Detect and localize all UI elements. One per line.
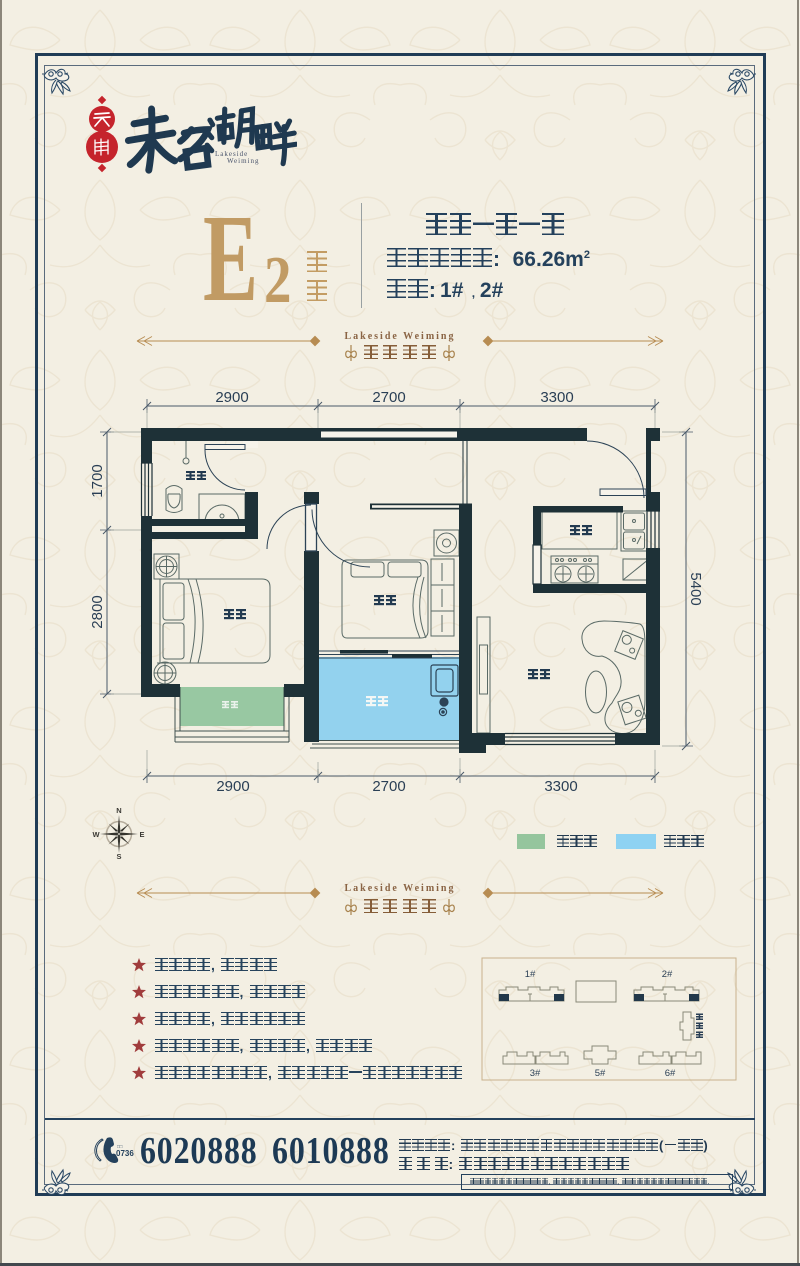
svg-text:5#: 5# [595, 1068, 606, 1079]
svg-text:0736: 0736 [116, 1149, 134, 1158]
svg-text:2#: 2# [662, 969, 673, 980]
svg-text:2700: 2700 [372, 778, 405, 795]
svg-text:1700: 1700 [89, 464, 106, 497]
svg-text:W: W [92, 830, 100, 839]
svg-text:2900: 2900 [215, 389, 248, 406]
svg-text:3#: 3# [530, 1068, 541, 1079]
svg-text:3300: 3300 [544, 778, 577, 795]
svg-text:6#: 6# [665, 1068, 676, 1079]
svg-text:N: N [116, 806, 121, 815]
svg-text:2800: 2800 [89, 595, 106, 628]
svg-text:E: E [139, 830, 144, 839]
svg-text:S: S [116, 852, 121, 860]
svg-text:2900: 2900 [216, 778, 249, 795]
svg-text:1#: 1# [525, 969, 536, 980]
svg-text:3300: 3300 [540, 389, 573, 406]
svg-text:5400: 5400 [687, 572, 704, 605]
svg-text:2700: 2700 [372, 389, 405, 406]
